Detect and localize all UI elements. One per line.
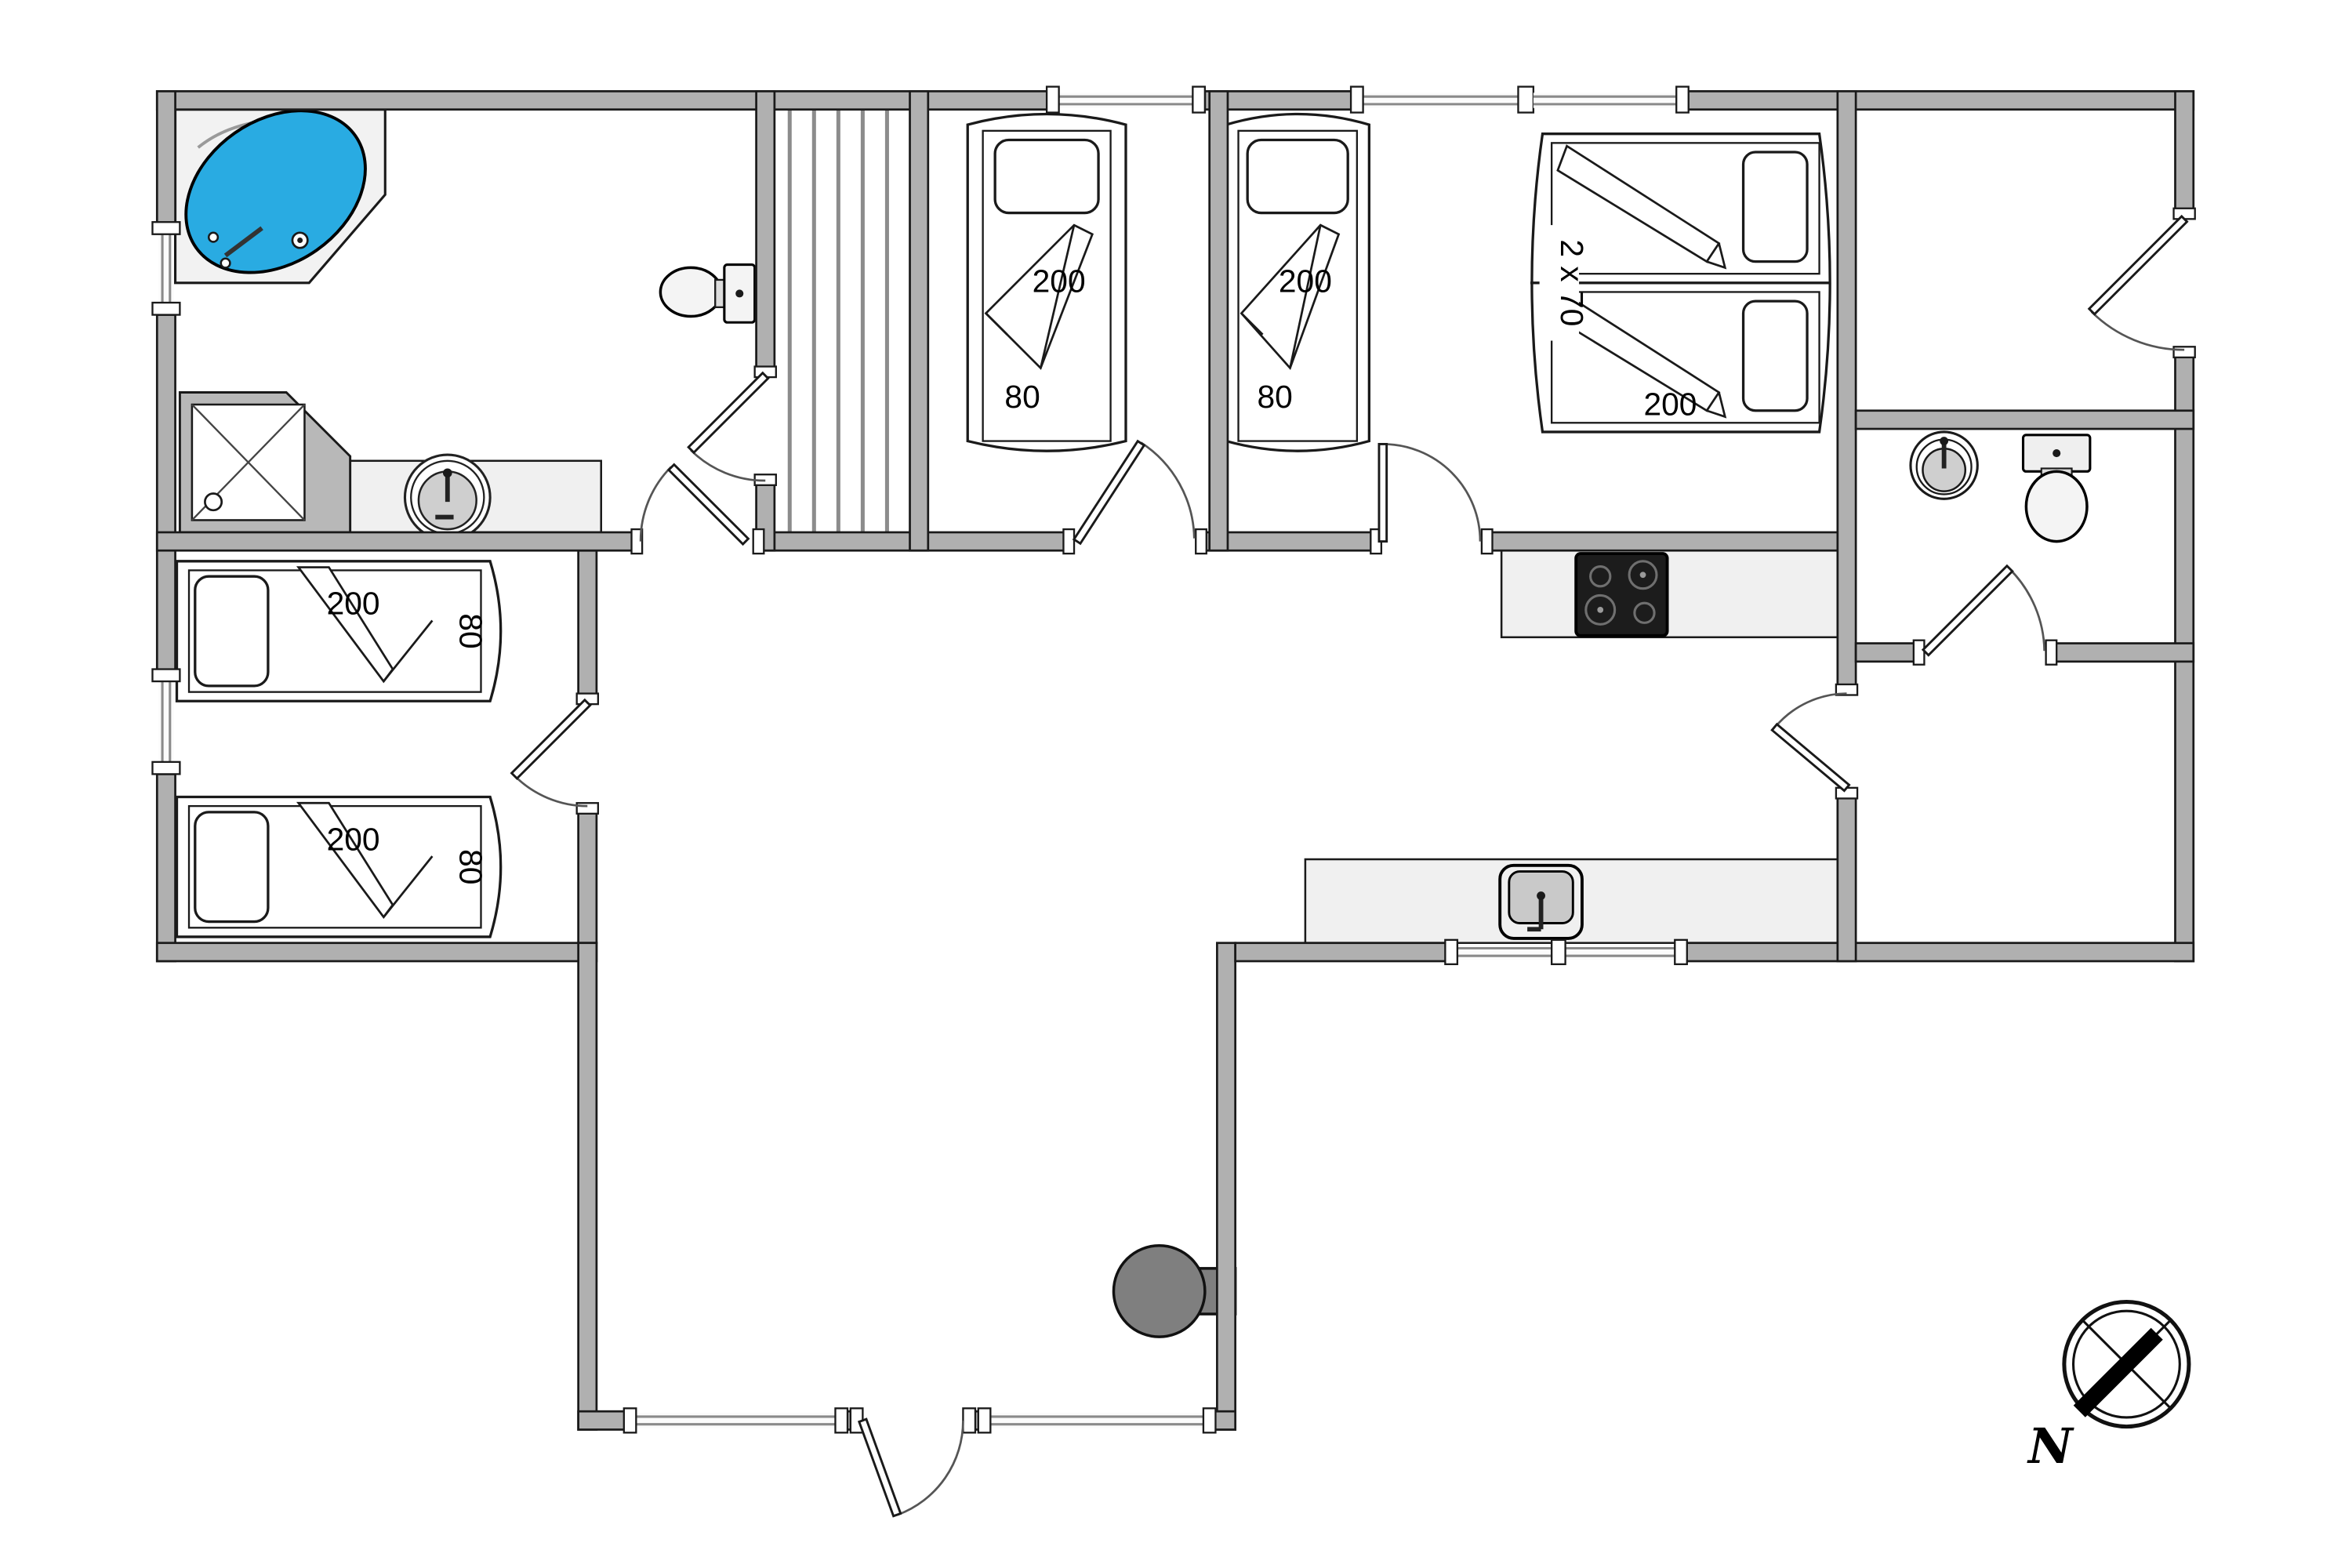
door-exterior-annex — [2089, 209, 2195, 358]
window-top-bedroom1 — [1047, 87, 1205, 113]
stove-body — [1113, 1246, 1204, 1337]
door-sauna — [688, 367, 776, 485]
door-bedroom1 — [1063, 441, 1206, 554]
sauna-bench-stripes — [775, 110, 910, 532]
compass-north-label: N — [2027, 1417, 2074, 1475]
bedroom1-bed-length-label: 200 — [1033, 263, 1086, 299]
door-kids-room — [512, 694, 598, 814]
window-top-family-room-right — [1534, 87, 1689, 113]
window-living-left — [624, 1408, 848, 1432]
kids-bed-top-length-label: 200 — [327, 586, 380, 622]
family-single-bed-length-label: 200 — [1279, 263, 1332, 299]
compass-needle-icon — [2079, 1334, 2157, 1411]
kids-bed-top-width-label: 80 — [452, 613, 488, 648]
door-entrance — [851, 1408, 975, 1515]
double-bed-length-label: 200 — [1643, 387, 1697, 423]
door-utility-room — [1772, 684, 1857, 798]
window-living-right — [978, 1408, 1216, 1432]
bathroom-sink-counter — [338, 455, 601, 540]
toilet-bowl — [660, 267, 721, 316]
kitchen-counter-sink — [1305, 859, 1838, 943]
door-small-bathroom — [1914, 566, 2056, 665]
shower — [180, 392, 350, 532]
floor-plan-canvas: 200 80 200 80 2 x 70 200 200 80 200 80 N — [0, 0, 2352, 1568]
toilet — [660, 265, 754, 323]
small-toilet-bowl — [2026, 471, 2087, 541]
kids-bed-bottom-length-label: 200 — [327, 821, 380, 857]
family-single-bed-width-label: 80 — [1257, 379, 1292, 415]
double-bed-width-label: 2 x 70 — [1554, 239, 1590, 326]
small-bathroom-toilet — [2024, 435, 2090, 542]
washbasin-faucet-dot — [443, 468, 452, 477]
kitchen-counter-cooktop — [1501, 550, 1838, 637]
kids-bed-bottom-width-label: 80 — [452, 849, 488, 884]
bedroom1-bed-width-label: 80 — [1004, 379, 1040, 415]
window-top-family-room-left — [1351, 87, 1534, 113]
small-bathroom-sink — [1911, 432, 1977, 499]
corner-bathtub — [155, 78, 397, 307]
shower-drain-icon — [205, 493, 221, 510]
floor-plan-page: 200 80 200 80 2 x 70 200 200 80 200 80 N — [0, 0, 2352, 1568]
walls — [157, 91, 2193, 1429]
door-family-room — [1370, 444, 1492, 554]
compass-rose: N — [2027, 1302, 2189, 1475]
toilet-button — [735, 289, 743, 297]
